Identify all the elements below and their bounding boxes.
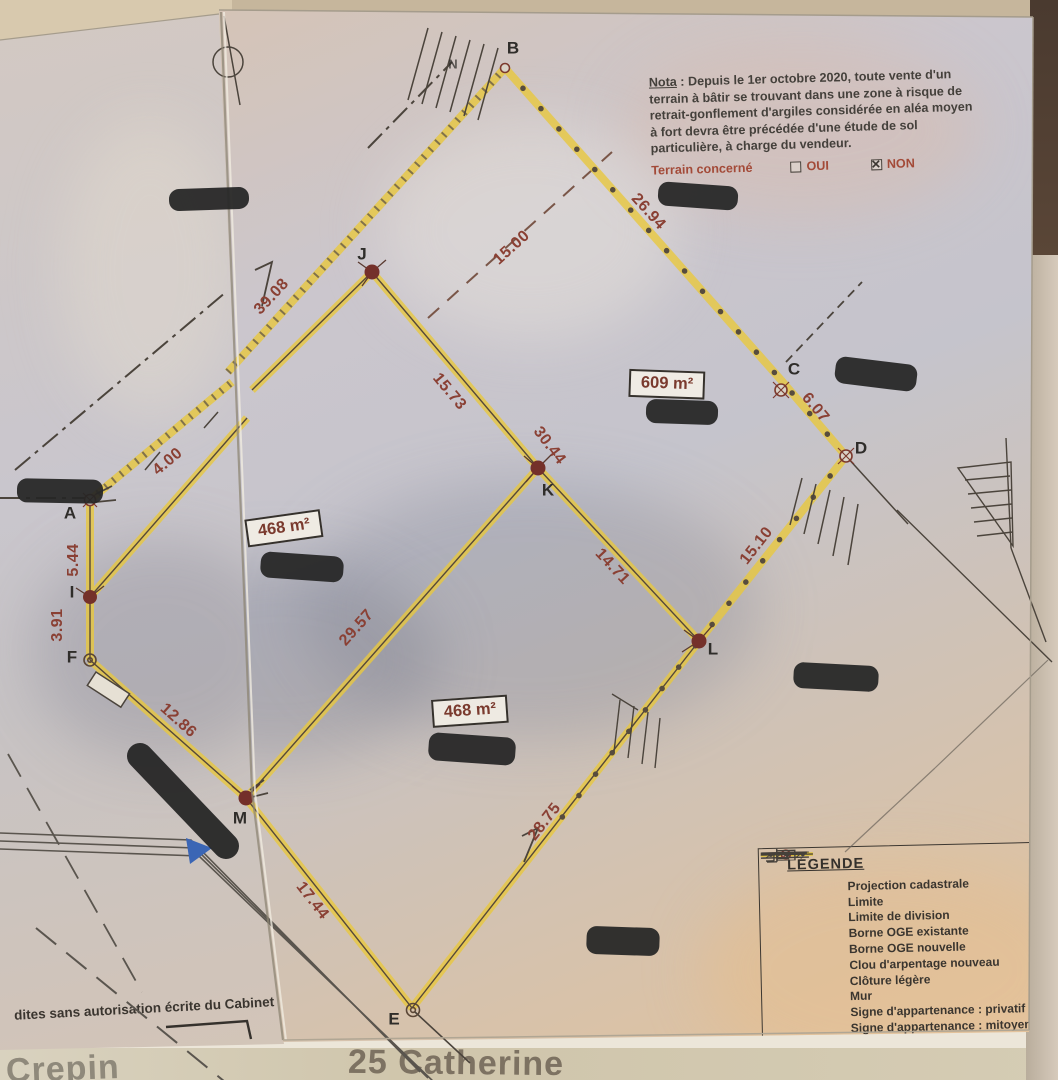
- yellow-line-icon: [784, 918, 840, 919]
- point-label-M: M: [233, 810, 247, 827]
- point-label-L: L: [708, 641, 718, 658]
- circle-cross-icon: [785, 965, 841, 966]
- photographed-cadastral-plan: Crepin 25 Catherine dites sans autorisat…: [0, 0, 1058, 1080]
- redaction-bar: [586, 926, 660, 957]
- area-label-468b: 468 m²: [431, 695, 509, 728]
- redaction-bar: [169, 187, 250, 212]
- background-right-dark: [1030, 0, 1058, 258]
- legend-title: LÉGENDE: [787, 852, 1038, 874]
- open-circle-icon: [785, 934, 841, 935]
- checkbox-oui-label: OUI: [806, 158, 829, 175]
- wall-hatch-icon: [786, 997, 842, 998]
- checkbox-non: [871, 159, 882, 170]
- point-label-K: K: [542, 482, 554, 499]
- point-label-B: B: [507, 40, 519, 57]
- nota-body: : Depuis le 1er octobre 2020, toute vent…: [649, 67, 973, 156]
- checkbox-non-label: NON: [887, 155, 915, 172]
- point-label-A: A: [64, 505, 76, 522]
- redaction-bar: [793, 662, 879, 692]
- redaction-bar: [646, 399, 719, 425]
- point-label-D: D: [855, 440, 867, 457]
- point-label-C: C: [788, 361, 800, 378]
- filled-circle-icon: [785, 949, 841, 950]
- ownership-private-icon: [786, 1013, 842, 1014]
- dotted-fence-icon: [786, 981, 842, 982]
- legend-box: LÉGENDE Projection cadastrale Limite Lim…: [758, 842, 1044, 1053]
- ownership-shared-icon: [787, 1028, 843, 1029]
- point-label-E: E: [388, 1011, 399, 1028]
- point-label-I: I: [70, 584, 75, 601]
- dim-3-91: 3.91: [50, 608, 66, 641]
- redaction-bar: [17, 478, 103, 503]
- redaction-bar: [428, 732, 517, 766]
- underlying-doc-text-left: Crepin: [5, 1048, 120, 1080]
- point-label-N: N: [448, 58, 457, 71]
- area-label-609: 609 m²: [628, 369, 705, 399]
- solid-line-icon: [784, 902, 840, 903]
- terrain-concerne-label: Terrain concerné: [651, 160, 753, 179]
- nota-block: Nota : Depuis le 1er octobre 2020, toute…: [649, 65, 982, 179]
- underlying-doc-text-bottom: 25 Catherine: [348, 1043, 564, 1080]
- point-label-F: F: [67, 649, 77, 666]
- dash-dot-line-icon: [784, 886, 840, 887]
- checkbox-oui: [790, 161, 801, 172]
- copyright-notice: dites sans autorisation écrite du Cabine…: [14, 994, 275, 1023]
- dim-5-44: 5.44: [66, 543, 82, 576]
- nota-label: Nota: [649, 75, 677, 90]
- point-label-J: J: [357, 246, 366, 263]
